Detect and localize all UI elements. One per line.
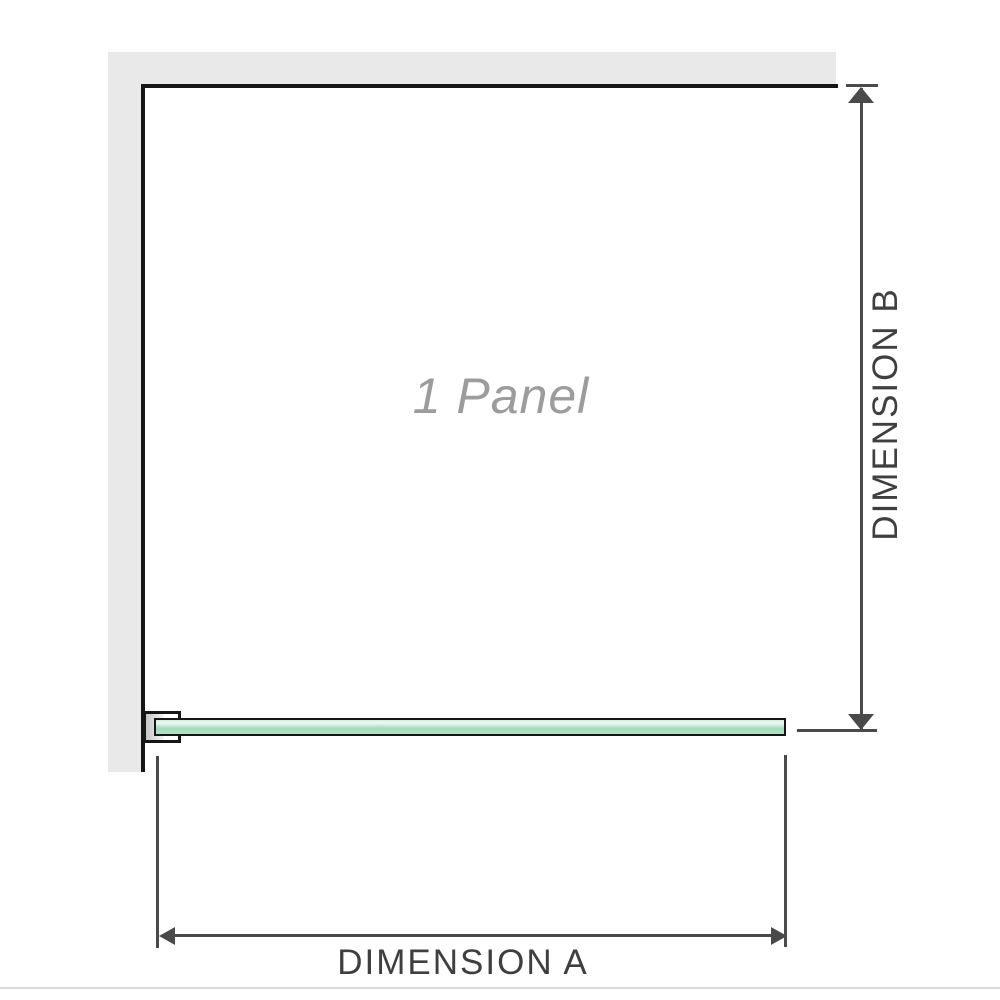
dimension-b-label: DIMENSION B [866,287,906,540]
bottom-divider-line [0,987,1000,989]
shower-panel-dimension-diagram: 1 Panel DIMENSION B DIMENSION A [0,0,1000,1000]
dimension-b-arrow-down-icon [848,714,874,730]
glass-panel [154,718,786,736]
panel-top-edge-line [141,84,838,88]
panel-left-edge-line [141,84,145,772]
dimension-a-label: DIMENSION A [337,943,588,983]
wall-left-band [108,52,141,772]
dimension-b-arrow-up-icon [848,87,874,103]
dimension-a-right-extension-line [784,755,787,947]
dimension-b-line [860,88,863,731]
dimension-a-arrow-right-icon [771,927,787,945]
dimension-a-arrow-left-icon [159,927,175,945]
panel-count-label: 1 Panel [413,367,590,425]
wall-top-band [108,52,836,85]
dimension-a-left-extension-line [156,756,159,948]
dimension-a-line [162,934,786,937]
